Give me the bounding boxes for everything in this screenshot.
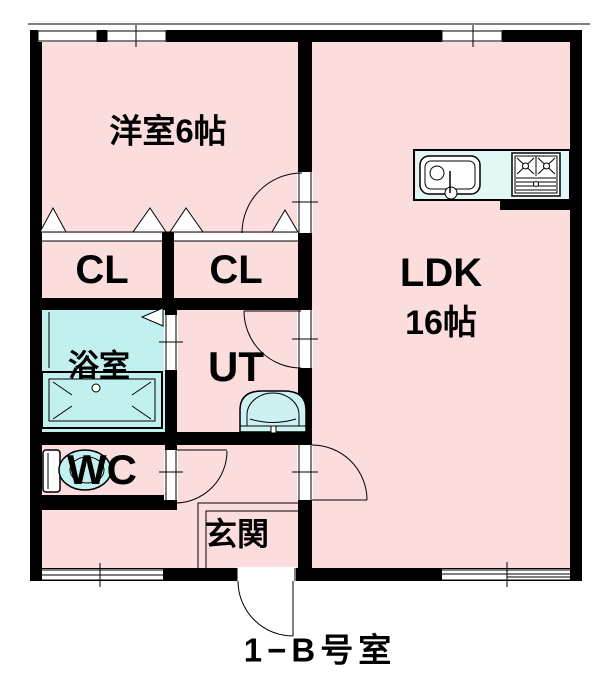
room-label-closet-right: CL [209, 250, 262, 290]
window [38, 30, 97, 42]
unit-caption: 1−B号室 [244, 634, 396, 667]
washbasin-icon [240, 391, 306, 433]
kitchen-counter [414, 150, 570, 200]
kitchen-sink-icon [420, 156, 480, 199]
room-label-ldk: LDK [400, 253, 482, 293]
room-label-western-room: 洋室6帖 [109, 115, 226, 148]
gas-stove-icon [512, 153, 560, 196]
room-label-ldk-size: 16帖 [405, 306, 477, 340]
door-swing-arc [238, 581, 293, 636]
room-label-wc: WC [67, 449, 137, 491]
room-label-utility: UT [208, 346, 264, 388]
room-label-closet-left: CL [75, 250, 128, 290]
room-label-entrance: 玄関 [205, 518, 269, 550]
floor-plan-drawing [0, 0, 607, 675]
room-label-bathroom: 浴室 [68, 351, 130, 382]
entrance-door [237, 567, 296, 636]
floor-plan-canvas: 洋室6帖 CL CL LDK 16帖 浴室 UT WC 玄関 1−B号室 [0, 0, 607, 675]
